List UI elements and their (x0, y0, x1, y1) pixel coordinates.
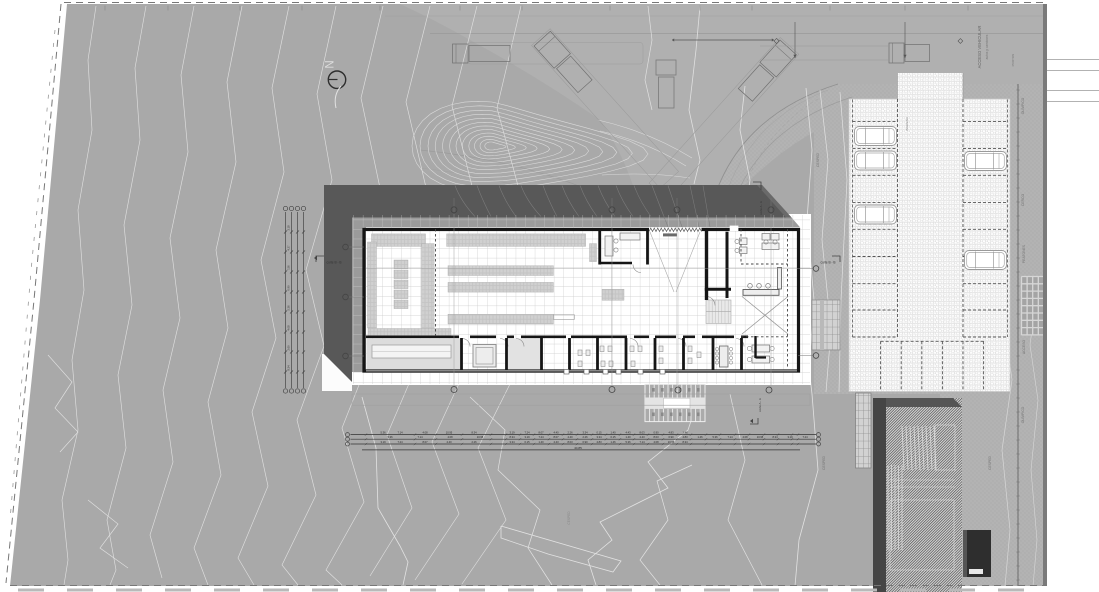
svg-text:0.90: 0.90 (668, 435, 674, 439)
svg-text:8.03: 8.03 (567, 440, 573, 444)
svg-text:corte A - A: corte A - A (758, 398, 762, 412)
svg-text:8.03: 8.03 (639, 430, 645, 434)
svg-text:3.34: 3.34 (596, 435, 602, 439)
svg-text:4.08: 4.08 (422, 430, 428, 434)
svg-text:0.90: 0.90 (582, 440, 588, 444)
svg-text:4.83: 4.83 (596, 440, 602, 444)
svg-text:5.36: 5.36 (380, 430, 386, 434)
svg-text:1.46: 1.46 (682, 430, 688, 434)
svg-text:7.14: 7.14 (417, 435, 423, 439)
svg-text:4.08: 4.08 (287, 325, 291, 331)
svg-text:7.14: 7.14 (639, 440, 645, 444)
svg-text:8.34: 8.34 (471, 430, 477, 434)
svg-text:7.14: 7.14 (727, 435, 733, 439)
svg-text:1.40: 1.40 (625, 435, 631, 439)
svg-text:7.24: 7.24 (524, 430, 530, 434)
svg-text:0.90: 0.90 (287, 285, 291, 291)
svg-text:4.40: 4.40 (446, 440, 452, 444)
svg-text:8.07: 8.07 (538, 430, 544, 434)
svg-text:7.56: 7.56 (287, 265, 291, 271)
svg-text:3.34: 3.34 (509, 440, 515, 444)
svg-text:3.18: 3.18 (287, 225, 291, 231)
svg-text:10.95: 10.95 (757, 435, 764, 439)
svg-text:CESPED: CESPED (567, 511, 571, 525)
svg-text:CESPED: CESPED (822, 455, 826, 469)
svg-text:10.95: 10.95 (446, 430, 453, 434)
svg-text:ACCESO: ACCESO (1022, 339, 1026, 354)
svg-text:3.19: 3.19 (509, 430, 515, 434)
svg-text:2.60: 2.60 (287, 345, 291, 351)
svg-text:8.07: 8.07 (422, 440, 428, 444)
svg-text:corte A - A: corte A - A (759, 201, 763, 215)
svg-text:7.14: 7.14 (397, 430, 403, 434)
svg-text:5.36: 5.36 (387, 435, 393, 439)
svg-text:7.24: 7.24 (538, 435, 544, 439)
svg-text:8.03: 8.03 (653, 435, 659, 439)
svg-text:8.34: 8.34 (772, 435, 778, 439)
svg-text:CERCO: CERCO (1021, 194, 1025, 207)
svg-text:3.19: 3.19 (787, 435, 793, 439)
svg-text:4.43: 4.43 (639, 435, 645, 439)
svg-text:5.36: 5.36 (287, 305, 291, 311)
svg-text:PORTON: PORTON (1011, 54, 1015, 67)
svg-text:3.34: 3.34 (582, 430, 588, 434)
svg-text:1.46: 1.46 (610, 440, 616, 444)
svg-text:1.40: 1.40 (538, 440, 544, 444)
svg-text:corte B - B: corte B - B (326, 261, 341, 265)
svg-text:2.26: 2.26 (567, 430, 573, 434)
svg-text:autos y camiones: autos y camiones (985, 34, 989, 59)
svg-text:corte B - B: corte B - B (820, 261, 835, 265)
svg-text:5.36: 5.36 (712, 435, 718, 439)
svg-text:4.08: 4.08 (653, 440, 659, 444)
svg-text:4.43: 4.43 (625, 430, 631, 434)
svg-text:2.26: 2.26 (471, 440, 477, 444)
svg-text:10.95: 10.95 (477, 435, 484, 439)
svg-text:4.83: 4.83 (668, 430, 674, 434)
svg-text:4.08: 4.08 (742, 435, 748, 439)
svg-text:OLIMPICO: OLIMPICO (1021, 406, 1025, 423)
svg-text:4.40: 4.40 (567, 435, 573, 439)
svg-text:4.08: 4.08 (447, 435, 453, 439)
svg-text:4.43: 4.43 (553, 440, 559, 444)
svg-text:PEATONES: PEATONES (1022, 244, 1026, 263)
svg-text:1.46: 1.46 (697, 435, 703, 439)
svg-text:44.85: 44.85 (574, 446, 582, 450)
svg-text:2.26: 2.26 (582, 435, 588, 439)
svg-text:7.24: 7.24 (802, 435, 808, 439)
svg-text:4.27: 4.27 (287, 245, 291, 251)
svg-text:4.40: 4.40 (553, 430, 559, 434)
svg-text:8.34: 8.34 (682, 440, 688, 444)
svg-text:0.15: 0.15 (524, 440, 530, 444)
svg-text:3.19: 3.19 (380, 440, 386, 444)
svg-text:8.34: 8.34 (509, 435, 515, 439)
svg-text:1.40: 1.40 (610, 430, 616, 434)
svg-text:8.34: 8.34 (287, 365, 291, 371)
svg-text:OLIMPICO: OLIMPICO (1021, 97, 1025, 114)
svg-text:0.15: 0.15 (610, 435, 616, 439)
svg-text:CESPED: CESPED (816, 152, 820, 166)
svg-text:0.90: 0.90 (653, 430, 659, 434)
svg-text:ACCESO VEHICULAR: ACCESO VEHICULAR (977, 26, 982, 69)
svg-text:INGRESO: INGRESO (905, 116, 909, 131)
svg-text:4.83: 4.83 (682, 435, 688, 439)
svg-text:3.19: 3.19 (524, 435, 530, 439)
svg-text:8.07: 8.07 (553, 435, 559, 439)
svg-text:CESPED: CESPED (988, 455, 992, 469)
svg-text:10.95: 10.95 (668, 440, 675, 444)
svg-text:N: N (325, 60, 337, 68)
svg-text:5.36: 5.36 (625, 440, 631, 444)
svg-text:7.24: 7.24 (397, 440, 403, 444)
svg-text:0.15: 0.15 (596, 430, 602, 434)
